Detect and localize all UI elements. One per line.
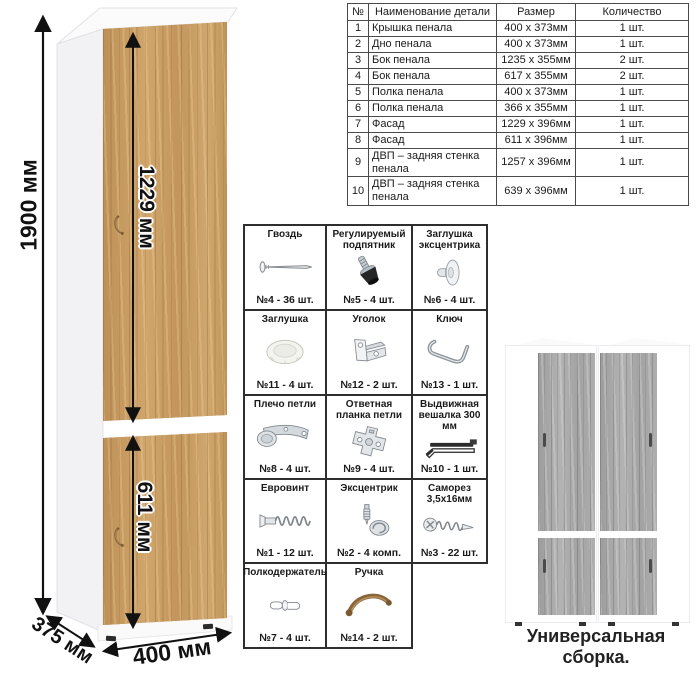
part-quantity: 1 шт. (576, 133, 689, 149)
table-row: 7 Фасад 1229 х 396мм 1 шт. (348, 117, 689, 133)
euro-screw-icon (252, 494, 318, 547)
hardware-grid: Гвоздь №4 - 36 шт. Регулируемый подпятни… (243, 224, 488, 649)
part-quantity: 1 шт. (576, 37, 689, 53)
hardware-item-qty: №3 - 22 шт. (421, 547, 478, 559)
part-number: 6 (348, 101, 369, 117)
mini-handle-icon (543, 433, 546, 447)
hardware-item-qty: №7 - 4 шт. (259, 632, 311, 644)
hardware-item-qty: №1 - 12 шт. (256, 547, 313, 559)
hardware-item-qty: №6 - 4 шт. (424, 294, 476, 306)
hardware-item-name: Заглушка (262, 314, 308, 325)
part-number: 2 (348, 37, 369, 53)
hardware-item-qty: №12 - 2 шт. (340, 379, 397, 391)
part-size: 639 х 396мм (497, 177, 576, 205)
hardware-item: Уголок №12 - 2 шт. (327, 311, 413, 396)
height-dimension-label: 1900 мм (16, 159, 43, 251)
hardware-item-name: Ответная планка петли (329, 399, 409, 421)
upper-door-dimension-label: 1229 мм (134, 165, 158, 249)
part-number: 8 (348, 133, 369, 149)
part-number: 7 (348, 117, 369, 133)
part-name: Дно пенала (369, 37, 497, 53)
part-size: 366 х 355мм (497, 101, 576, 117)
part-quantity: 2 шт. (576, 69, 689, 85)
mini-handle-icon (649, 433, 652, 447)
table-row: 4 Бок пенала 617 х 355мм 2 шт. (348, 69, 689, 85)
part-name: Полка пенала (369, 101, 497, 117)
hardware-item: Заглушка эксцентрика №6 - 4 шт. (413, 226, 488, 311)
pin-icon (252, 578, 318, 632)
hardware-item-name: Выдвижная вешалка 300 мм (415, 399, 484, 433)
cap-icon (252, 325, 318, 379)
part-name: Крышка пенала (369, 21, 497, 37)
parts-table-header-cell: Количество (576, 4, 689, 21)
hardware-item-name: Плечо петли (254, 399, 316, 410)
table-row: 10 ДВП – задняя стенка пенала 639 х 396м… (348, 177, 689, 205)
cam-icon (336, 494, 402, 547)
mini-handle-icon (649, 559, 652, 573)
hardware-item-name: Полкодержатель (243, 567, 327, 578)
bracket-icon (336, 325, 402, 379)
table-row: 5 Полка пенала 400 х 373мм 1 шт. (348, 85, 689, 101)
plate-icon (336, 421, 402, 463)
part-number: 9 (348, 149, 369, 177)
part-size: 617 х 355мм (497, 69, 576, 85)
hardware-item-name: Регулируемый подпятник (329, 229, 409, 251)
part-size: 611 х 396мм (497, 133, 576, 149)
parts-table-header-cell: Наименование детали (369, 4, 497, 21)
cam-cover-icon (417, 251, 483, 294)
table-row: 6 Полка пенала 366 х 355мм 1 шт. (348, 101, 689, 117)
mini-upper-door (538, 353, 595, 531)
parts-table-header-cell: № (348, 4, 369, 21)
foot-icon (336, 251, 402, 294)
nail-icon (252, 240, 318, 294)
hardware-item-name: Саморез 3,5х16мм (415, 483, 484, 505)
parts-table: №Наименование деталиРазмерКоличество 1 К… (347, 3, 689, 206)
part-size: 1229 х 396мм (497, 117, 576, 133)
part-number: 10 (348, 177, 369, 205)
hardware-item-name: Уголок (352, 314, 385, 325)
hardware-item: Выдвижная вешалка 300 мм №10 - 1 шт. (413, 396, 488, 480)
parts-table-header-cell: Размер (497, 4, 576, 21)
part-quantity: 1 шт. (576, 149, 689, 177)
mini-handle-icon (543, 559, 546, 573)
hardware-item-name: Ключ (436, 314, 462, 325)
table-row: 9 ДВП – задняя стенка пенала 1257 х 396м… (348, 149, 689, 177)
hardware-item-name: Евровинт (261, 483, 309, 494)
key-icon (417, 325, 483, 379)
hardware-item: Саморез 3,5х16мм №3 - 22 шт. (413, 480, 488, 564)
part-name: Бок пенала (369, 69, 497, 85)
mini-cabinet-right (598, 345, 690, 623)
parts-table-header-row: №Наименование деталиРазмерКоличество (348, 4, 689, 21)
part-size: 1257 х 396мм (497, 149, 576, 177)
screw-icon (417, 505, 483, 547)
part-name: Полка пенала (369, 85, 497, 101)
upper-door-handle-icon (111, 205, 127, 245)
assembly-instruction-sheet: 1900 мм 1229 мм 611 мм 375 мм 400 мм №На… (0, 0, 700, 683)
mini-lower-door (538, 538, 595, 615)
part-quantity: 1 шт. (576, 85, 689, 101)
part-size: 400 х 373мм (497, 21, 576, 37)
mini-cabinet-left (505, 345, 597, 623)
part-size: 400 х 373мм (497, 85, 576, 101)
part-quantity: 1 шт. (576, 177, 689, 205)
hardware-item: Заглушка №11 - 4 шт. (245, 311, 327, 396)
hinge-icon (252, 410, 318, 463)
empty-cell (413, 564, 488, 649)
part-quantity: 1 шт. (576, 101, 689, 117)
part-name: Бок пенала (369, 53, 497, 69)
hardware-item-name: Гвоздь (268, 229, 303, 240)
part-quantity: 1 шт. (576, 21, 689, 37)
lower-door-dimension-label: 611 мм (132, 482, 156, 553)
hardware-item-qty: №9 - 4 шт. (343, 463, 395, 475)
hardware-item: Ручка №14 - 2 шт. (327, 564, 413, 649)
hardware-item: Регулируемый подпятник №5 - 4 шт. (327, 226, 413, 311)
part-number: 1 (348, 21, 369, 37)
hardware-item: Гвоздь №4 - 36 шт. (245, 226, 327, 311)
part-name: Фасад (369, 133, 497, 149)
hardware-item-qty: №11 - 4 шт. (257, 379, 314, 391)
mini-lower-door (600, 538, 657, 615)
hardware-item-qty: №13 - 1 шт. (421, 379, 478, 391)
hardware-item: Ответная планка петли №9 - 4 шт. (327, 396, 413, 480)
hardware-item-qty: №5 - 4 шт. (343, 294, 395, 306)
hanger-icon (417, 433, 483, 463)
hardware-item-qty: №8 - 4 шт. (259, 463, 311, 475)
hardware-item: Плечо петли №8 - 4 шт. (245, 396, 327, 480)
hardware-item-qty: №10 - 1 шт. (421, 463, 478, 475)
hardware-item-name: Заглушка эксцентрика (415, 229, 484, 251)
part-number: 3 (348, 53, 369, 69)
part-size: 400 х 373мм (497, 37, 576, 53)
universal-assembly-caption: Универсальная сборка. (492, 626, 700, 668)
table-row: 1 Крышка пенала 400 х 373мм 1 шт. (348, 21, 689, 37)
part-number: 4 (348, 69, 369, 85)
hardware-item-qty: №14 - 2 шт. (340, 632, 397, 644)
hardware-item-qty: №2 - 4 комп. (337, 547, 401, 559)
hardware-item: Эксцентрик №2 - 4 комп. (327, 480, 413, 564)
part-number: 5 (348, 85, 369, 101)
part-quantity: 1 шт. (576, 117, 689, 133)
hardware-item-name: Эксцентрик (340, 483, 397, 494)
part-size: 1235 х 355мм (497, 53, 576, 69)
hardware-item-name: Ручка (355, 567, 384, 578)
lower-door-handle-icon (111, 517, 127, 557)
table-row: 8 Фасад 611 х 396мм 1 шт. (348, 133, 689, 149)
table-row: 2 Дно пенала 400 х 373мм 1 шт. (348, 37, 689, 53)
part-quantity: 2 шт. (576, 53, 689, 69)
hardware-item: Евровинт №1 - 12 шт. (245, 480, 327, 564)
hardware-item: Ключ №13 - 1 шт. (413, 311, 488, 396)
part-name: ДВП – задняя стенка пенала (369, 177, 497, 205)
part-name: Фасад (369, 117, 497, 133)
table-row: 3 Бок пенала 1235 х 355мм 2 шт. (348, 53, 689, 69)
hardware-item: Полкодержатель №7 - 4 шт. (245, 564, 327, 649)
part-name: ДВП – задняя стенка пенала (369, 149, 497, 177)
hardware-item-qty: №4 - 36 шт. (256, 294, 313, 306)
handle-icon (336, 578, 402, 632)
